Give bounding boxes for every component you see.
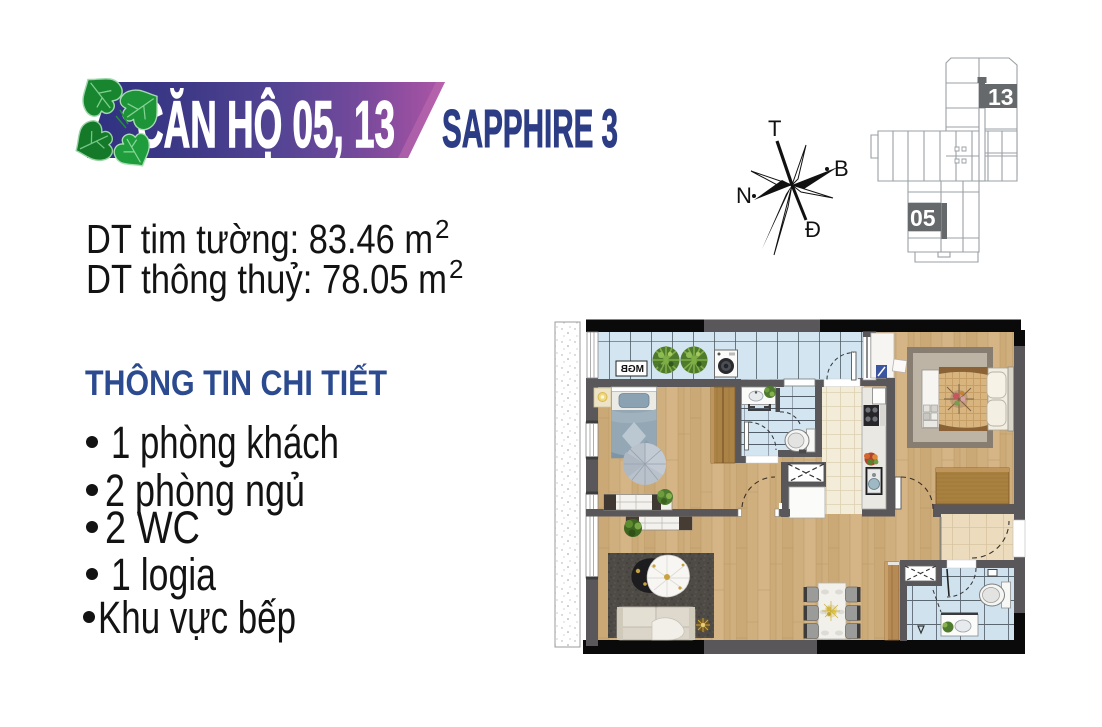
svg-text:05: 05 [910,205,936,231]
svg-text:2: 2 [449,254,463,284]
svg-text:2 WC: 2 WC [105,502,200,553]
svg-text:T: T [768,116,781,141]
svg-text:THÔNG TIN CHI TIẾT: THÔNG TIN CHI TIẾT [85,363,387,403]
svg-text:Đ: Đ [805,217,821,242]
svg-text:1 phòng khách: 1 phòng khách [111,417,339,468]
svg-text:DT thông thuỷ: 78.05 m: DT thông thuỷ: 78.05 m [86,256,447,302]
svg-text:CĂN HỘ 05, 13: CĂN HỘ 05, 13 [137,87,395,161]
svg-text:2: 2 [435,214,449,244]
svg-text:SAPPHIRE 3: SAPPHIRE 3 [442,99,618,159]
svg-text:MGB: MGB [621,364,644,375]
svg-text:13: 13 [988,84,1014,110]
svg-text:N: N [736,183,752,208]
svg-text:B: B [834,156,849,181]
svg-text:Khu vực bếp: Khu vực bếp [98,592,296,643]
